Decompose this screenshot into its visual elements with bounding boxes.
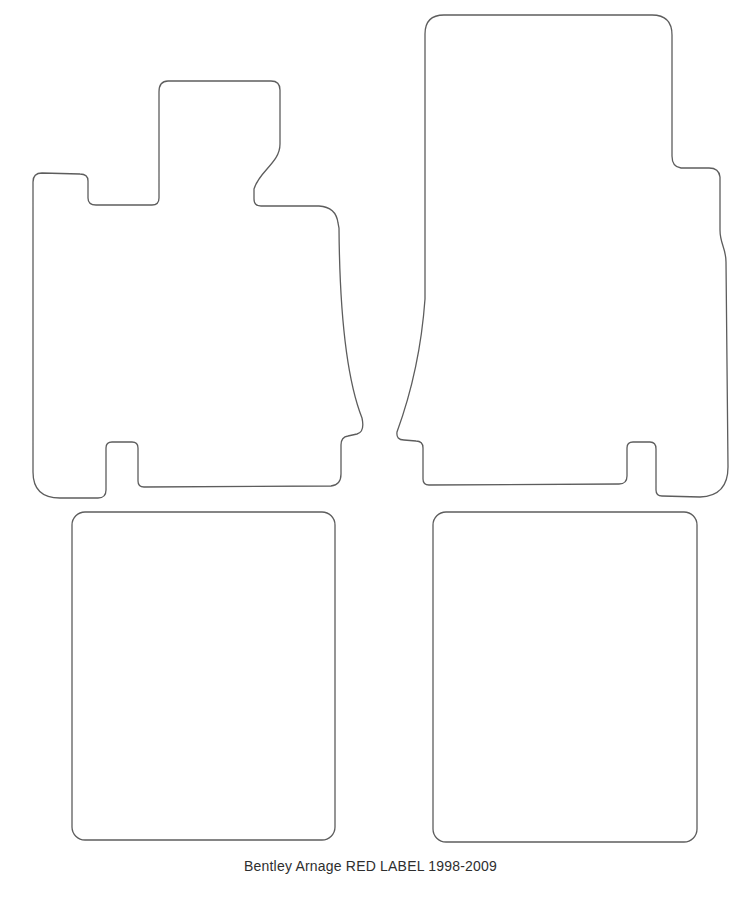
rear-right-mat-outline — [433, 512, 697, 842]
floor-mats-diagram — [0, 0, 751, 900]
diagram-caption: Bentley Arnage RED LABEL 1998-2009 — [0, 858, 741, 874]
front-right-mat-outline — [397, 15, 728, 497]
front-left-mat-outline — [33, 81, 363, 498]
floor-mat-template-sheet: Bentley Arnage RED LABEL 1998-2009 — [0, 0, 751, 900]
rear-left-mat-outline — [72, 512, 335, 840]
